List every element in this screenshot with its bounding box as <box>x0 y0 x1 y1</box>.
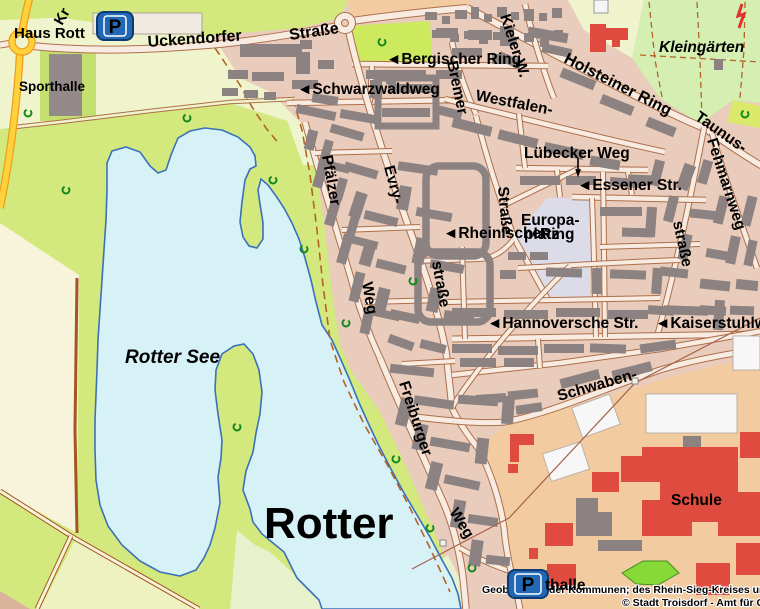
svg-text:P: P <box>522 575 535 596</box>
svg-text:Schule: Schule <box>671 492 722 509</box>
svg-text:thalle: thalle <box>545 577 586 594</box>
svg-text:◄Hannoversche Str.: ◄Hannoversche Str. <box>487 315 638 332</box>
svg-text:◄Schwarzwaldweg: ◄Schwarzwaldweg <box>297 81 440 98</box>
svg-text:Haus Rott: Haus Rott <box>14 25 85 42</box>
svg-text:Rotter: Rotter <box>264 499 394 548</box>
svg-text:Kleingärten: Kleingärten <box>659 39 744 56</box>
svg-text:Lübecker Weg: Lübecker Weg <box>524 145 630 162</box>
svg-text:Rotter See: Rotter See <box>125 347 220 368</box>
svg-text:© Stadt Troisdorf - Amt für Ge: © Stadt Troisdorf - Amt für Ge <box>622 597 760 609</box>
svg-text:◄Rheinischer: ◄Rheinischer <box>443 225 547 242</box>
svg-text:Sporthalle: Sporthalle <box>19 79 86 94</box>
svg-text:Geob: Geob <box>482 584 509 596</box>
svg-text:P: P <box>109 17 122 38</box>
svg-text:◄Essener Str.: ◄Essener Str. <box>577 177 682 194</box>
svg-text:Ring: Ring <box>540 226 574 243</box>
svg-text:◄Kaiserstuhlw: ◄Kaiserstuhlw <box>655 315 760 332</box>
